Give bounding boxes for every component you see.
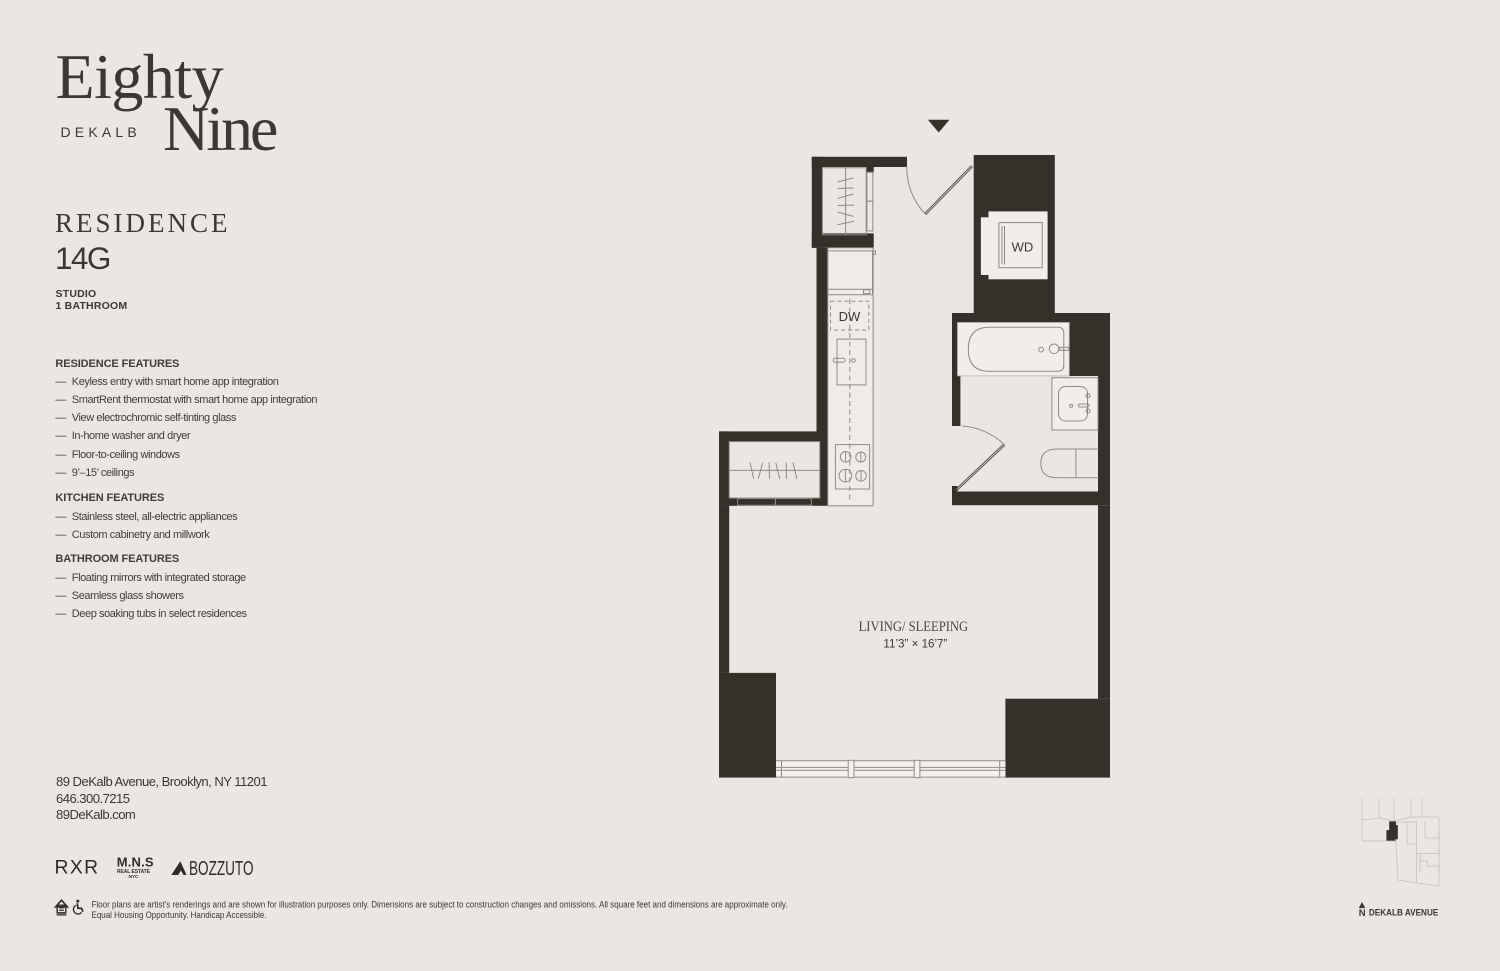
- svg-text:DW: DW: [839, 309, 861, 324]
- svg-text:WD: WD: [1012, 240, 1034, 255]
- svg-text:NYC: NYC: [129, 874, 139, 879]
- svg-text:Floor plans are artist’s rende: Floor plans are artist’s renderings and …: [92, 899, 788, 909]
- svg-text:M.N.S: M.N.S: [117, 855, 154, 870]
- svg-text:RXR: RXR: [55, 857, 100, 879]
- svg-text:DEKALB AVENUE: DEKALB AVENUE: [1369, 908, 1438, 919]
- svg-text:Equal Housing Opportunity. Han: Equal Housing Opportunity. Handicap Acce…: [92, 910, 267, 920]
- svg-text:N: N: [1359, 908, 1366, 919]
- svg-text:LIVING/ SLEEPING: LIVING/ SLEEPING: [859, 619, 969, 635]
- svg-text:11’3” × 16’7”: 11’3” × 16’7”: [883, 637, 947, 651]
- svg-text:BOZZUTO: BOZZUTO: [189, 858, 254, 880]
